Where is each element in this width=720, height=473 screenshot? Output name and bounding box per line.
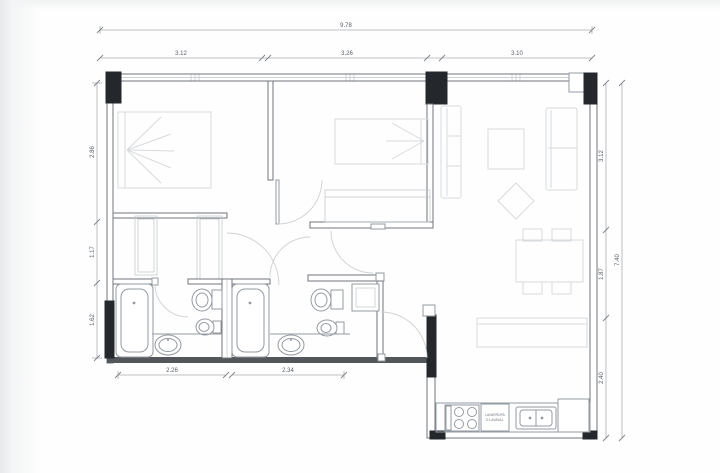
outer-walls xyxy=(105,72,597,439)
dining-chair xyxy=(523,229,542,241)
bar-counter xyxy=(477,318,587,347)
kitchen-sink xyxy=(516,407,556,429)
dining-chair xyxy=(523,282,542,294)
dimension-top-segments: 3.12 3.26 3.10 xyxy=(97,51,595,61)
right-wall xyxy=(590,74,597,438)
column xyxy=(105,301,114,358)
bathroom2-top-wall xyxy=(232,279,270,284)
dim-label-bottom-seg-2: 2.34 xyxy=(282,368,294,374)
column xyxy=(427,315,436,377)
door-jamb xyxy=(376,273,384,281)
toilet-2 xyxy=(311,289,343,311)
dim-label-left-seg-1: 2.86 xyxy=(90,146,96,158)
floor-plan-drawing: 9.78 3.12 3.26 3.10 2.86 1.17 1.62 3.12 … xyxy=(0,0,720,473)
door-threshold xyxy=(371,224,385,229)
bathroom-1 xyxy=(113,278,233,358)
sink-2 xyxy=(270,334,350,355)
column xyxy=(106,72,121,103)
bedroom-1 xyxy=(113,81,279,285)
dim-label-left-seg-3: 1.62 xyxy=(90,314,96,326)
bathtub-1 xyxy=(116,284,153,357)
kitchen: LAVARROPA O LAVAVAJ. xyxy=(436,399,590,432)
wardrobe-2 xyxy=(197,216,222,283)
door-pivot xyxy=(378,354,385,361)
bathroom-2 xyxy=(232,237,427,361)
dimension-top-total: 9.78 xyxy=(97,23,595,34)
sink-1 xyxy=(152,334,222,355)
dimension-right-segments: 3.12 1.87 2.40 xyxy=(599,80,609,441)
dim-label-top-seg-2: 3.26 xyxy=(341,51,353,57)
dining-chair xyxy=(552,229,571,241)
living-room xyxy=(441,106,587,347)
armchair xyxy=(546,108,577,190)
door-arc-bathroom2 xyxy=(270,237,310,277)
door-leaf-bedroom2 xyxy=(276,180,279,224)
door-arc-dressing xyxy=(227,233,279,285)
partition-wall xyxy=(268,81,273,180)
shower-unit xyxy=(352,284,379,311)
dim-label-top-seg-3: 3.10 xyxy=(511,51,523,57)
dim-label-right-seg-2: 1.87 xyxy=(599,268,605,280)
dim-label-right-seg-1: 3.12 xyxy=(599,150,605,162)
closet-row xyxy=(325,190,430,222)
stove-icon xyxy=(445,405,479,431)
sofa xyxy=(441,106,461,198)
column xyxy=(584,73,597,104)
bedroom1-bottom-wall xyxy=(113,213,227,218)
bottom-right-wall xyxy=(430,432,597,438)
coffee-table xyxy=(488,129,524,169)
door-arc-bedroom2 xyxy=(278,180,322,224)
dim-label-top-total: 9.78 xyxy=(340,23,352,29)
door-jamb xyxy=(152,278,158,285)
dimension-bottom-segments: 2.26 2.34 xyxy=(115,368,347,379)
dim-label-left-seg-2: 1.17 xyxy=(90,246,96,258)
rug-diamond xyxy=(498,183,534,219)
floor-plan-page: 9.78 3.12 3.26 3.10 2.86 1.17 1.62 3.12 … xyxy=(0,0,720,473)
wardrobe-1 xyxy=(135,216,157,275)
bathroom1-top-wall xyxy=(113,279,155,284)
dimension-left-segments: 2.86 1.17 1.62 xyxy=(90,80,102,361)
door-arc-hall xyxy=(331,231,373,273)
dimension-right-total: 7.40 xyxy=(615,80,625,441)
dim-label-top-seg-1: 3.12 xyxy=(175,51,187,57)
bedroom-2 xyxy=(276,104,433,273)
washer-label-line1: LAVARROPA xyxy=(485,413,505,417)
dim-label-right-seg-3: 2.40 xyxy=(599,372,605,384)
bathtub-2 xyxy=(232,284,269,357)
washer-box: LAVARROPA O LAVAVAJ. xyxy=(481,404,509,431)
dim-label-right-total: 7.40 xyxy=(615,254,621,266)
bidet-1 xyxy=(196,319,221,335)
bed-1 xyxy=(118,112,211,188)
door-arc-kitchen xyxy=(381,312,427,358)
column xyxy=(426,72,447,104)
dim-label-bottom-seg-1: 2.26 xyxy=(166,368,178,374)
dining-table xyxy=(516,229,583,294)
fridge xyxy=(558,399,589,432)
toilet-1 xyxy=(192,289,222,311)
door-jamb xyxy=(423,305,435,316)
bathroom2-top-wall xyxy=(308,275,380,281)
dining-chair xyxy=(552,282,571,294)
door-arc-bathroom1 xyxy=(155,284,188,317)
bed-2 xyxy=(335,119,428,164)
washer-label-line2: O LAVAVAJ. xyxy=(486,418,504,422)
ac-unit-box xyxy=(569,73,584,92)
